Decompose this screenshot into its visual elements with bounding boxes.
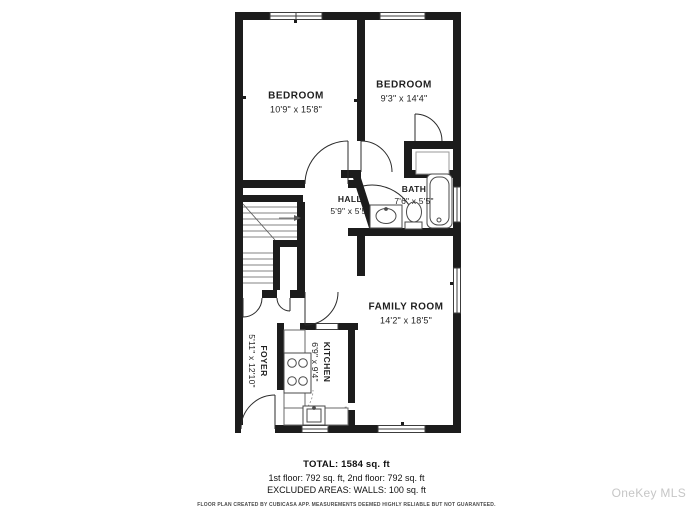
room-name: BATH bbox=[394, 184, 433, 195]
watermark-text: OneKey MLS bbox=[612, 486, 686, 500]
room-dims: 6'9" x 9'4" bbox=[310, 342, 321, 383]
room-label-bedroom-2: BEDROOM 9'3" x 14'4" bbox=[376, 80, 432, 105]
room-name: BEDROOM bbox=[268, 91, 324, 104]
room-dims: 9'3" x 14'4" bbox=[376, 93, 432, 104]
room-label-bath: BATH 7'6" x 5'5" bbox=[394, 184, 433, 206]
room-dims: 5'9" x 5'5" bbox=[330, 206, 369, 217]
room-label-kitchen: KITCHEN 6'9" x 9'4" bbox=[310, 342, 332, 383]
room-label-hall: HALL 5'9" x 5'5" bbox=[330, 194, 369, 216]
vanity-sink-icon bbox=[370, 205, 402, 228]
room-label-foyer: FOYER 5'11" x 12'10" bbox=[247, 334, 269, 388]
kitchen-sink-icon bbox=[303, 406, 325, 425]
floor-plan-drawing bbox=[0, 0, 693, 520]
room-label-family-room: FAMILY ROOM 14'2" x 18'5" bbox=[369, 302, 444, 327]
room-dims: 5'11" x 12'10" bbox=[247, 334, 258, 388]
room-dims: 7'6" x 5'5" bbox=[394, 196, 433, 207]
floor-plan-page: BEDROOM 10'9" x 15'8" BEDROOM 9'3" x 14'… bbox=[0, 0, 693, 520]
closet-interior bbox=[416, 152, 449, 174]
total-area-text: TOTAL: 1584 sq. ft bbox=[0, 459, 693, 470]
room-name: FAMILY ROOM bbox=[369, 302, 444, 315]
excluded-areas-text: EXCLUDED AREAS: WALLS: 100 sq. ft bbox=[0, 485, 693, 495]
room-dims: 14'2" x 18'5" bbox=[369, 315, 444, 326]
room-name: HALL bbox=[330, 194, 369, 205]
entry-door-gap bbox=[241, 425, 275, 433]
room-name: BEDROOM bbox=[376, 80, 432, 93]
stove-icon bbox=[284, 353, 311, 393]
room-dims: 10'9" x 15'8" bbox=[268, 104, 324, 115]
floor-areas-text: 1st floor: 792 sq. ft, 2nd floor: 792 sq… bbox=[0, 473, 693, 483]
disclaimer-text: FLOOR PLAN CREATED BY CUBICASA APP. MEAS… bbox=[0, 502, 693, 508]
room-label-bedroom-1: BEDROOM 10'9" x 15'8" bbox=[268, 91, 324, 116]
room-name: KITCHEN bbox=[322, 342, 333, 383]
area-summary: TOTAL: 1584 sq. ft 1st floor: 792 sq. ft… bbox=[0, 459, 693, 495]
room-name: FOYER bbox=[259, 334, 270, 388]
